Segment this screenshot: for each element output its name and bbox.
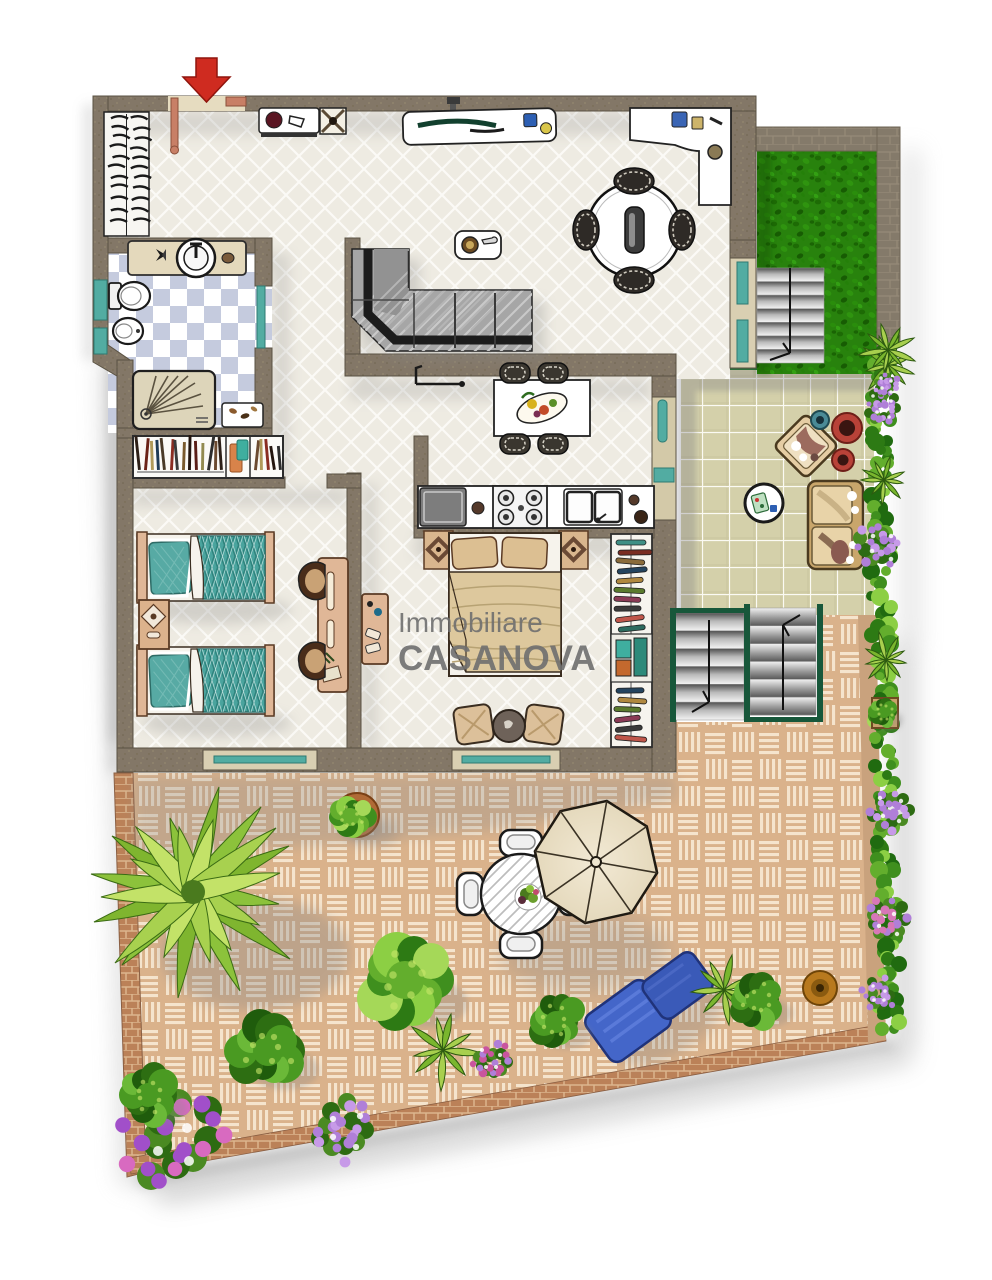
svg-text:CASANOVA: CASANOVA (398, 639, 596, 678)
svg-text:Immobiliare: Immobiliare (398, 607, 543, 638)
